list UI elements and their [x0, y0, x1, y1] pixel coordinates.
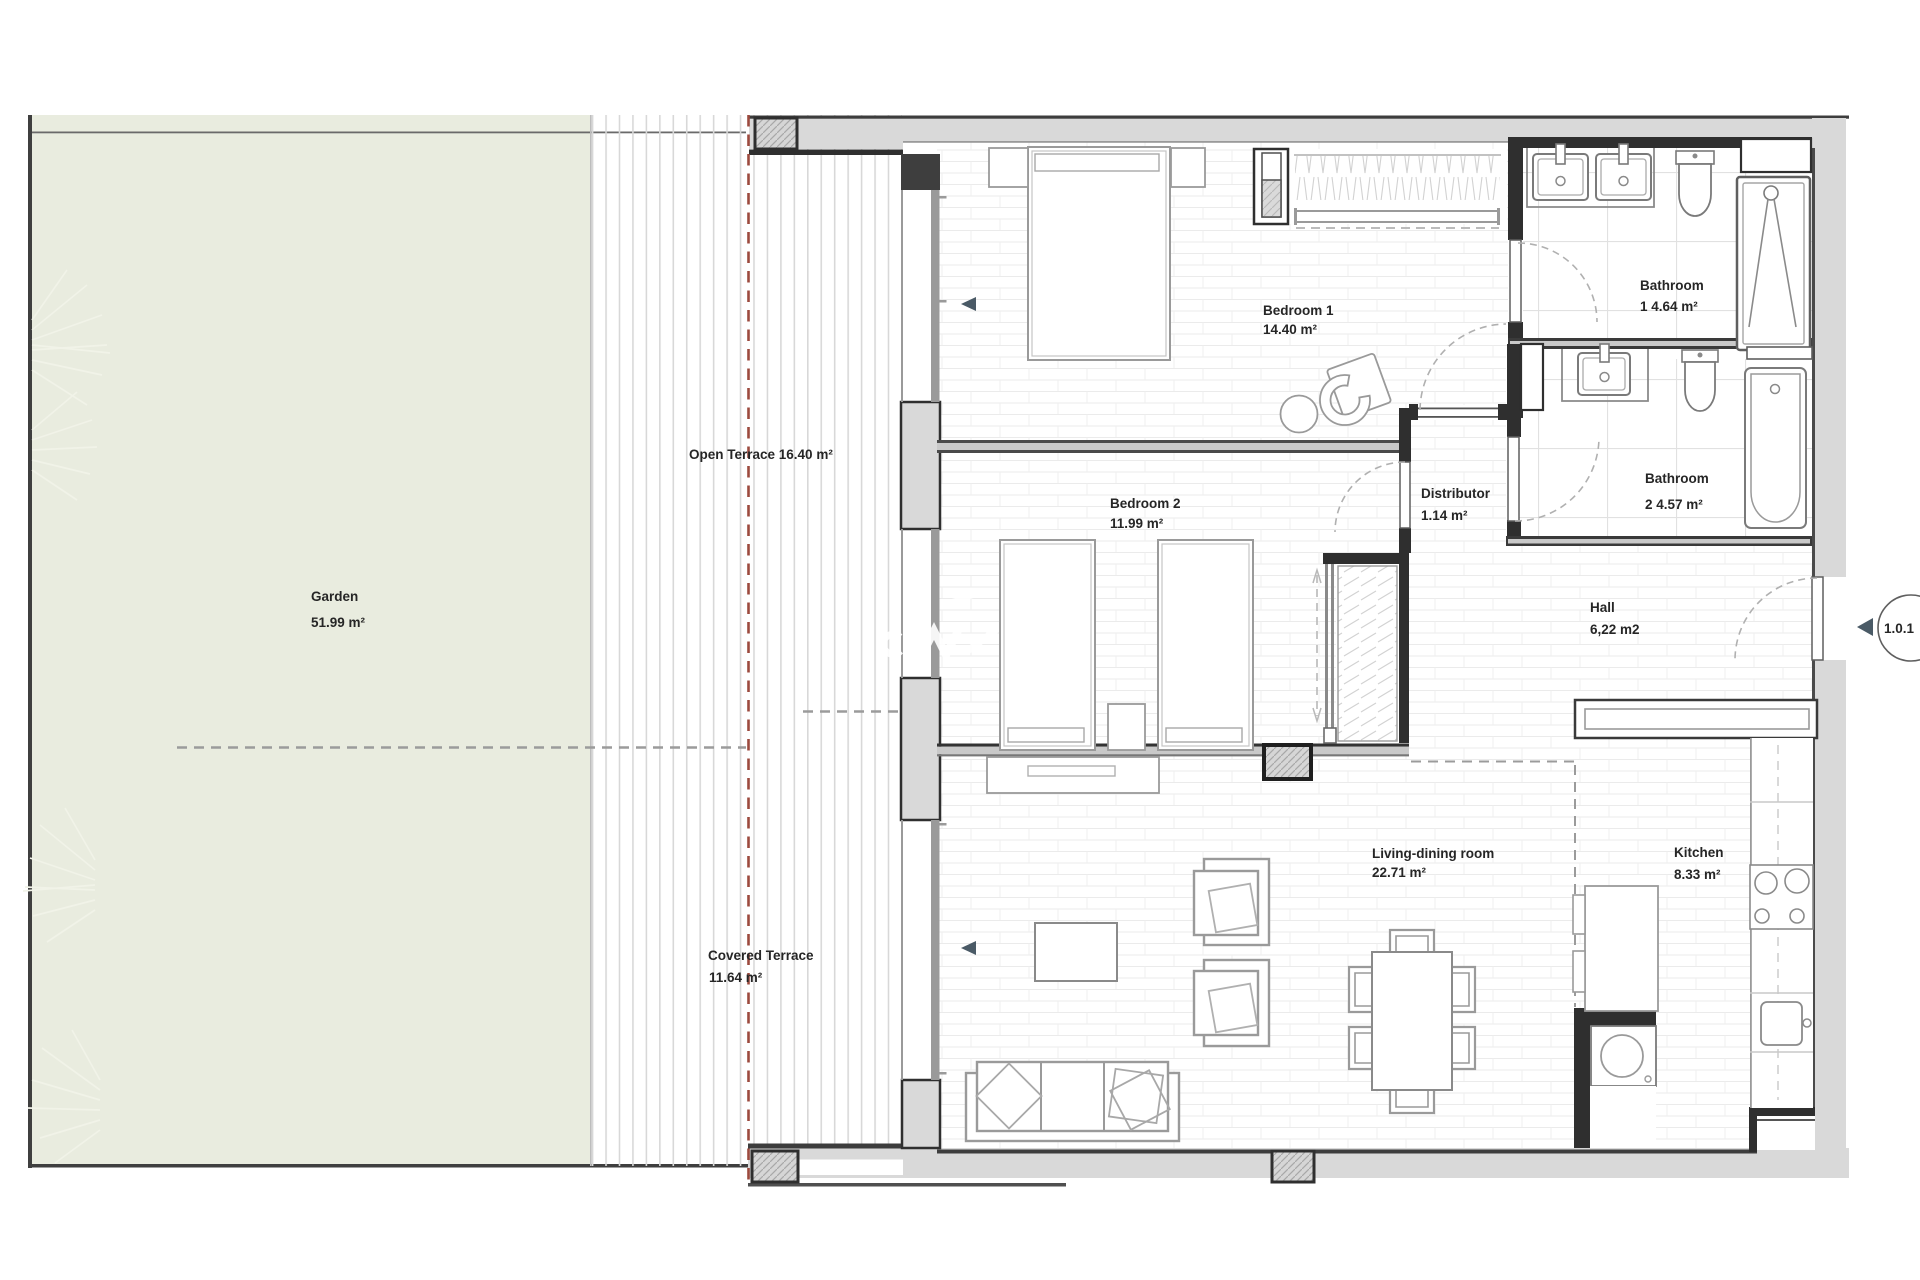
svg-text:Bedroom 2: Bedroom 2	[1110, 496, 1181, 511]
svg-text:22.71 m²: 22.71 m²	[1372, 865, 1427, 880]
svg-text:14.40 m²: 14.40 m²	[1263, 322, 1318, 337]
svg-text:Open Terrace 16.40 m²: Open Terrace 16.40 m²	[689, 447, 833, 462]
svg-text:Bathroom: Bathroom	[1640, 278, 1704, 293]
svg-text:1.14 m²: 1.14 m²	[1421, 508, 1468, 523]
svg-text:2 4.57 m²: 2 4.57 m²	[1645, 497, 1703, 512]
svg-text:11.99 m²: 11.99 m²	[1110, 516, 1164, 531]
svg-text:Kitchen: Kitchen	[1674, 845, 1724, 860]
svg-text:Bathroom: Bathroom	[1645, 471, 1709, 486]
svg-text:Distributor: Distributor	[1421, 486, 1491, 501]
svg-text:11.64 m²: 11.64 m²	[709, 970, 763, 985]
svg-text:Covered Terrace: Covered Terrace	[708, 948, 814, 963]
svg-text:1.0.1: 1.0.1	[1884, 621, 1915, 636]
svg-text:51.99 m²: 51.99 m²	[311, 615, 366, 630]
svg-text:1 4.64 m²: 1 4.64 m²	[1640, 299, 1698, 314]
svg-text:6,22 m2: 6,22 m2	[1590, 622, 1640, 637]
svg-text:Bedroom 1: Bedroom 1	[1263, 303, 1334, 318]
svg-text:Hall: Hall	[1590, 600, 1615, 615]
svg-text:Garden: Garden	[311, 589, 358, 604]
svg-text:Living-dining room: Living-dining room	[1372, 846, 1494, 861]
svg-text:8.33 m²: 8.33 m²	[1674, 867, 1721, 882]
